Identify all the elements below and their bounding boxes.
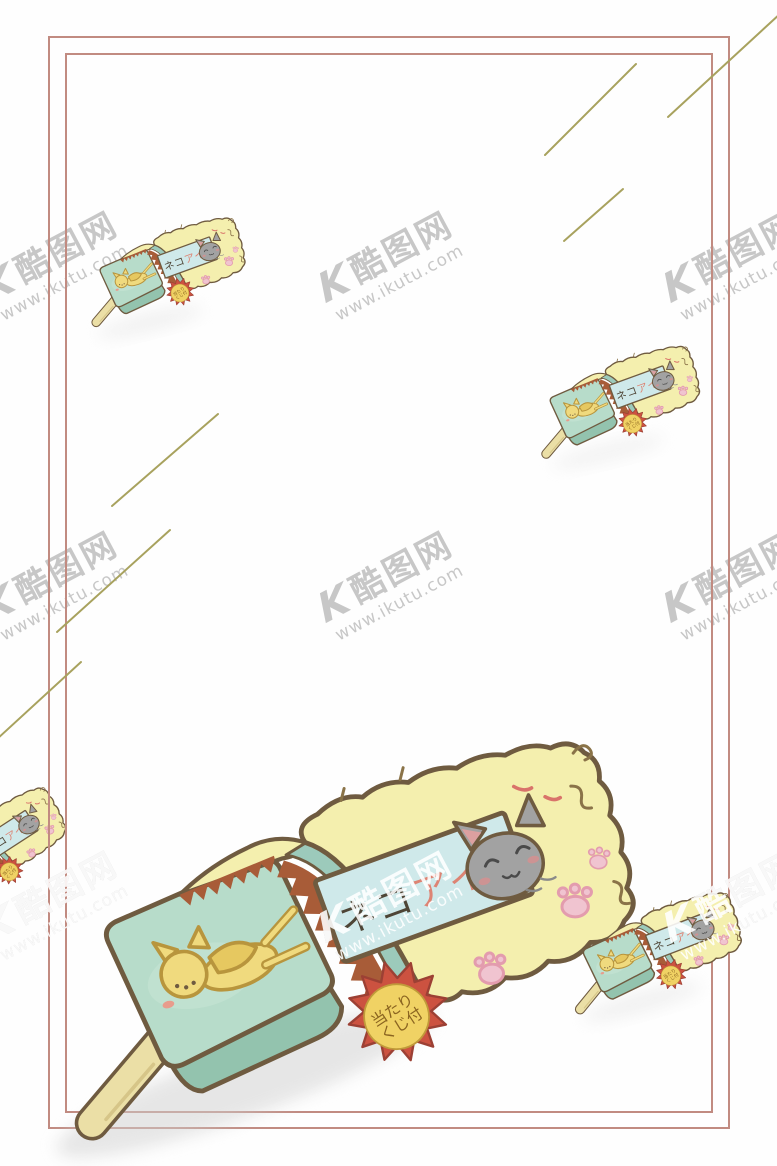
watermark-white: K酷图网www.ikutu.com	[656, 844, 777, 966]
watermark: K酷图网www.ikutu.com	[311, 524, 469, 646]
watermark: K酷图网www.ikutu.com	[0, 204, 134, 326]
diagonal-accent-line	[545, 64, 636, 155]
popsicle-right-middle	[527, 339, 708, 460]
watermark-url: www.ikutu.com	[676, 0, 777, 6]
poster-canvas: K酷图网www.ikutu.com K酷图网www.ikutu.com K酷图网…	[0, 0, 777, 1166]
watermark: K酷图网www.ikutu.com	[311, 204, 469, 326]
diagonal-accent-line	[668, 12, 777, 117]
popsicle-shadow	[94, 300, 205, 344]
watermark: K酷图网www.ikutu.com	[656, 524, 777, 646]
watermark-url: www.ikutu.com	[331, 0, 470, 6]
watermark: K酷图网www.ikutu.com	[656, 204, 777, 326]
watermark-white: K酷图网www.ikutu.com	[0, 844, 134, 966]
watermark: K酷图网www.ikutu.com	[311, 0, 469, 6]
diagonal-accent-line	[112, 414, 218, 506]
watermark-url: www.ikutu.com	[0, 0, 134, 6]
popsicle-shadow	[550, 429, 667, 475]
diagonal-accent-line	[0, 662, 81, 740]
popsicle-shadow	[45, 982, 444, 1166]
watermark: K酷图网www.ikutu.com	[0, 0, 134, 6]
watermark: K酷图网www.ikutu.com	[0, 524, 134, 646]
diagonal-accent-line	[564, 189, 623, 241]
watermark: K酷图网www.ikutu.com	[656, 0, 777, 6]
watermark-white: K酷图网www.ikutu.com	[311, 844, 469, 966]
popsicle-shadow	[580, 975, 705, 1028]
